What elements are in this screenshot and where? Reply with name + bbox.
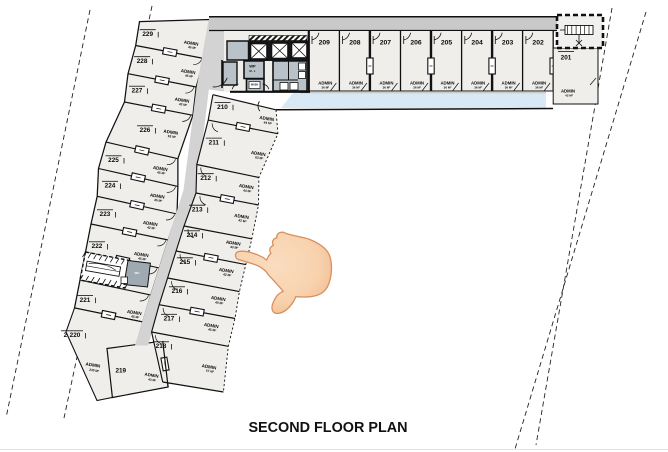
svg-text:201: 201 [561, 55, 572, 62]
svg-text:216: 216 [172, 288, 183, 295]
svg-text:228: 228 [137, 58, 148, 65]
svg-text:36 M²: 36 M² [505, 85, 513, 89]
svg-text:211: 211 [209, 140, 220, 147]
svg-text:42 M²: 42 M² [565, 93, 573, 97]
svg-text:213: 213 [192, 207, 203, 214]
svg-text:36 M²: 36 M² [413, 85, 421, 89]
svg-text:229: 229 [142, 31, 153, 38]
svg-text:204: 204 [471, 40, 483, 47]
svg-text:203: 203 [502, 40, 514, 47]
svg-text:36 M²: 36 M² [474, 85, 482, 89]
svg-text:36 M²: 36 M² [321, 85, 329, 89]
svg-text:219: 219 [115, 367, 126, 374]
svg-text:36 M²: 36 M² [352, 85, 360, 89]
svg-text:202: 202 [532, 40, 544, 47]
svg-text:36 M²: 36 M² [535, 85, 543, 89]
svg-text:206: 206 [410, 40, 422, 47]
svg-text:207: 207 [380, 40, 392, 47]
svg-text:WASH: WASH [251, 84, 258, 87]
svg-text:225: 225 [108, 157, 119, 164]
svg-text:208: 208 [349, 40, 361, 47]
svg-text:224: 224 [105, 183, 116, 190]
svg-text:205: 205 [441, 40, 453, 47]
svg-text:210: 210 [217, 104, 228, 111]
svg-text:SECOND FLOOR PLAN: SECOND FLOOR PLAN [248, 420, 407, 436]
svg-text:215: 215 [180, 259, 191, 266]
svg-text:36 M²: 36 M² [444, 85, 452, 89]
svg-text:36 M²: 36 M² [383, 85, 391, 89]
svg-text:222: 222 [92, 243, 103, 250]
svg-text:226: 226 [140, 127, 151, 134]
svg-text:220: 220 [70, 332, 81, 339]
svg-text:223: 223 [100, 211, 111, 218]
svg-text:212: 212 [200, 175, 211, 182]
svg-text:209: 209 [319, 40, 331, 47]
svg-text:227: 227 [132, 88, 143, 95]
svg-text:WC: WC [135, 271, 141, 275]
svg-text:M · L: M · L [249, 69, 255, 73]
svg-text:214: 214 [187, 232, 198, 239]
svg-text:WP: WP [249, 64, 256, 69]
svg-text:221: 221 [80, 297, 91, 304]
svg-text:217: 217 [164, 316, 175, 323]
svg-text:218: 218 [156, 343, 167, 350]
